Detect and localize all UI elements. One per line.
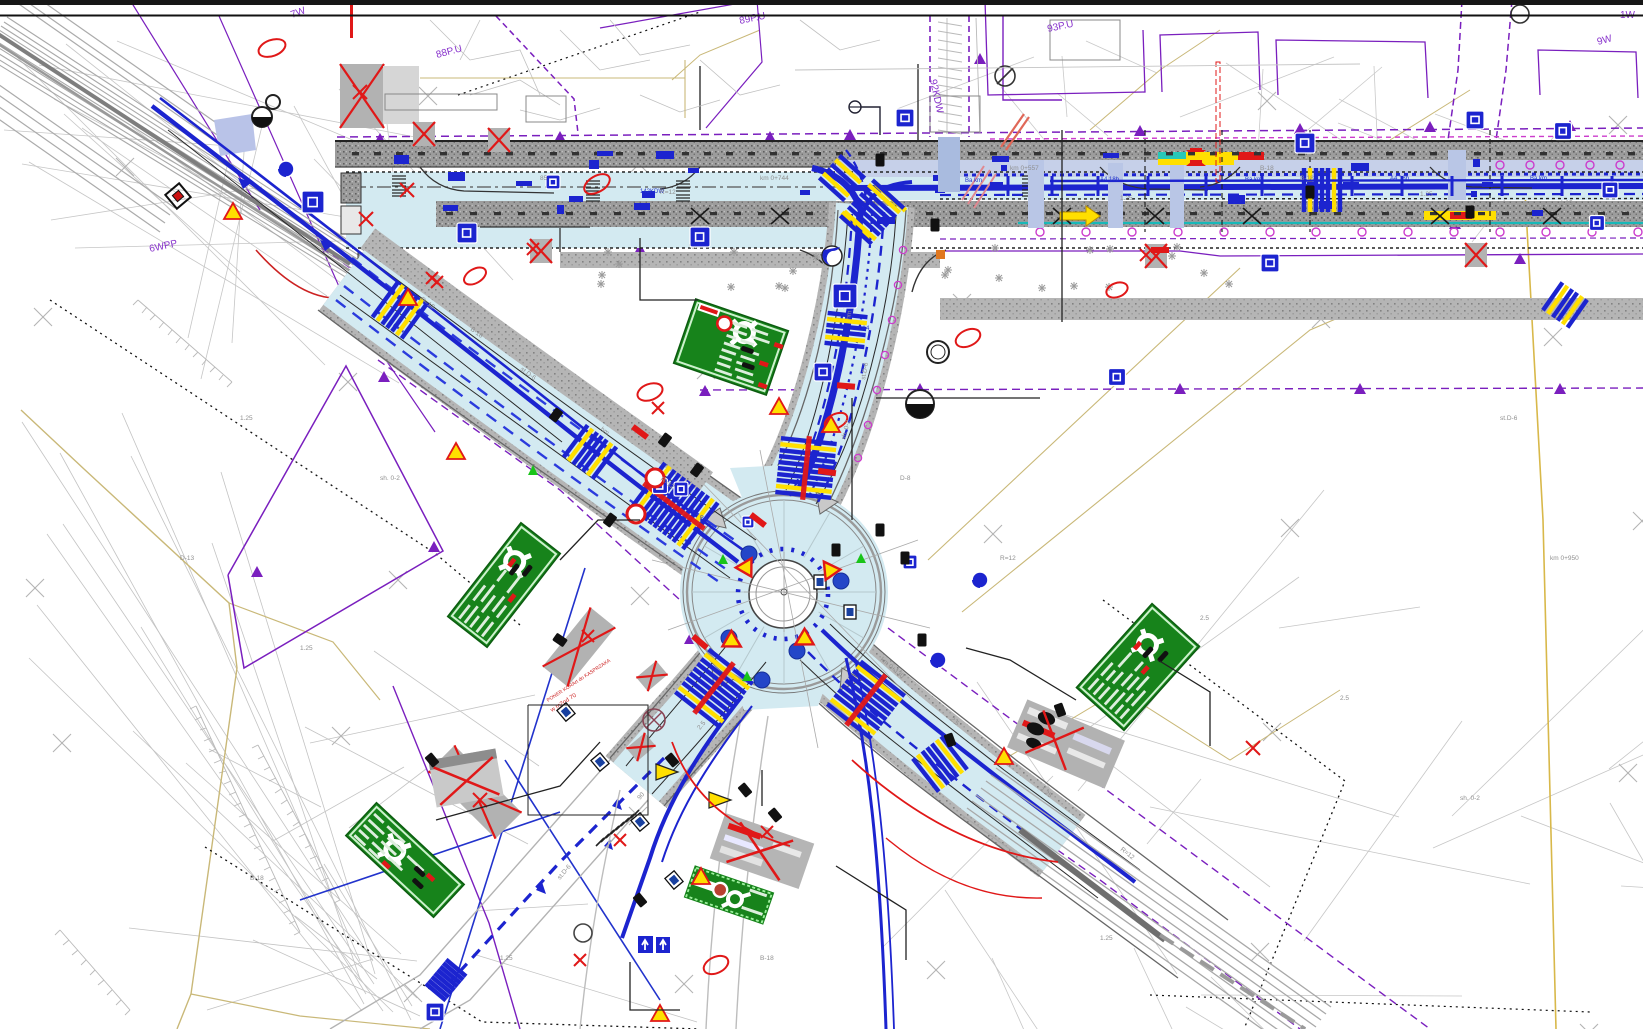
svg-text:R=12: R=12 xyxy=(660,189,676,196)
svg-text:km 0+950: km 0+950 xyxy=(1550,555,1579,562)
svg-text:1.25: 1.25 xyxy=(1420,191,1433,198)
svg-text:sh. 0-2: sh. 0-2 xyxy=(1460,795,1480,802)
svg-text:km 0+744: km 0+744 xyxy=(760,175,789,182)
svg-text:Ba: Ba xyxy=(700,516,708,522)
svg-text:Ba km: Ba km xyxy=(965,178,982,184)
svg-text:B-18: B-18 xyxy=(1260,165,1274,172)
svg-text:st.D-6: st.D-6 xyxy=(1500,415,1518,422)
svg-text:1.25: 1.25 xyxy=(300,645,313,652)
svg-text:sh. 0-2: sh. 0-2 xyxy=(380,475,400,482)
svg-text:D-8: D-8 xyxy=(900,475,911,482)
svg-text:85: 85 xyxy=(540,175,548,182)
svg-text:Ba km: Ba km xyxy=(1245,177,1262,183)
svg-text:B-18: B-18 xyxy=(1300,175,1314,182)
svg-text:km 0+557: km 0+557 xyxy=(1010,165,1039,172)
svg-text:R=12: R=12 xyxy=(1000,555,1016,562)
svg-text:1.25: 1.25 xyxy=(500,955,513,962)
svg-text:2.5: 2.5 xyxy=(1340,695,1349,702)
svg-text:1.25: 1.25 xyxy=(1560,200,1573,207)
svg-text:2.5: 2.5 xyxy=(1200,615,1209,622)
svg-text:1.25: 1.25 xyxy=(1100,935,1113,942)
svg-text:A4: A4 xyxy=(862,326,870,332)
svg-text:R=12: R=12 xyxy=(420,161,436,168)
svg-text:B-18: B-18 xyxy=(760,955,774,962)
svg-text:A4 18b: A4 18b xyxy=(1390,176,1410,182)
svg-text:1.25: 1.25 xyxy=(240,415,253,422)
svg-text:A4 18b: A4 18b xyxy=(1100,177,1120,183)
svg-text:Ba km: Ba km xyxy=(1530,176,1547,182)
svg-text:D-13: D-13 xyxy=(180,555,194,562)
svg-text:1.25: 1.25 xyxy=(1120,195,1133,202)
svg-text:B-18: B-18 xyxy=(250,875,264,882)
